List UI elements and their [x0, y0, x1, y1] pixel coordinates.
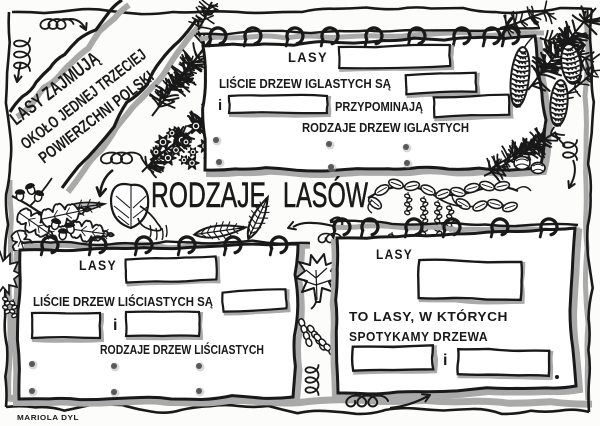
svg-text:MARIOLA DYL: MARIOLA DYL: [17, 413, 79, 422]
svg-text:LASY: LASY: [288, 49, 328, 65]
svg-text:i: i: [443, 352, 447, 369]
svg-text:LASÓW: LASÓW: [283, 176, 368, 215]
svg-text:i: i: [113, 317, 117, 334]
svg-text:TO LASY, W KTÓRYCH: TO LASY, W KTÓRYCH: [349, 309, 508, 324]
svg-text:RODZAJE DRZEW LIŚCIASTYCH: RODZAJE DRZEW LIŚCIASTYCH: [100, 342, 264, 357]
svg-text:LIŚCIE DRZEW LIŚCIASTYCH SĄ: LIŚCIE DRZEW LIŚCIASTYCH SĄ: [33, 294, 214, 309]
svg-text:LASY: LASY: [376, 246, 413, 262]
svg-text:SPOTYKAMY DRZEWA: SPOTYKAMY DRZEWA: [349, 329, 488, 344]
svg-text:LASY: LASY: [79, 257, 117, 273]
svg-text:RODZAJE DRZEW IGLASTYCH: RODZAJE DRZEW IGLASTYCH: [302, 121, 469, 135]
svg-text:PRZYPOMINAJĄ: PRZYPOMINAJĄ: [335, 100, 423, 114]
svg-text:i: i: [218, 97, 222, 114]
svg-text:LIŚCIE DRZEW IGLASTYCH SĄ: LIŚCIE DRZEW IGLASTYCH SĄ: [219, 76, 391, 91]
svg-text:RODZAJE: RODZAJE: [151, 176, 266, 215]
